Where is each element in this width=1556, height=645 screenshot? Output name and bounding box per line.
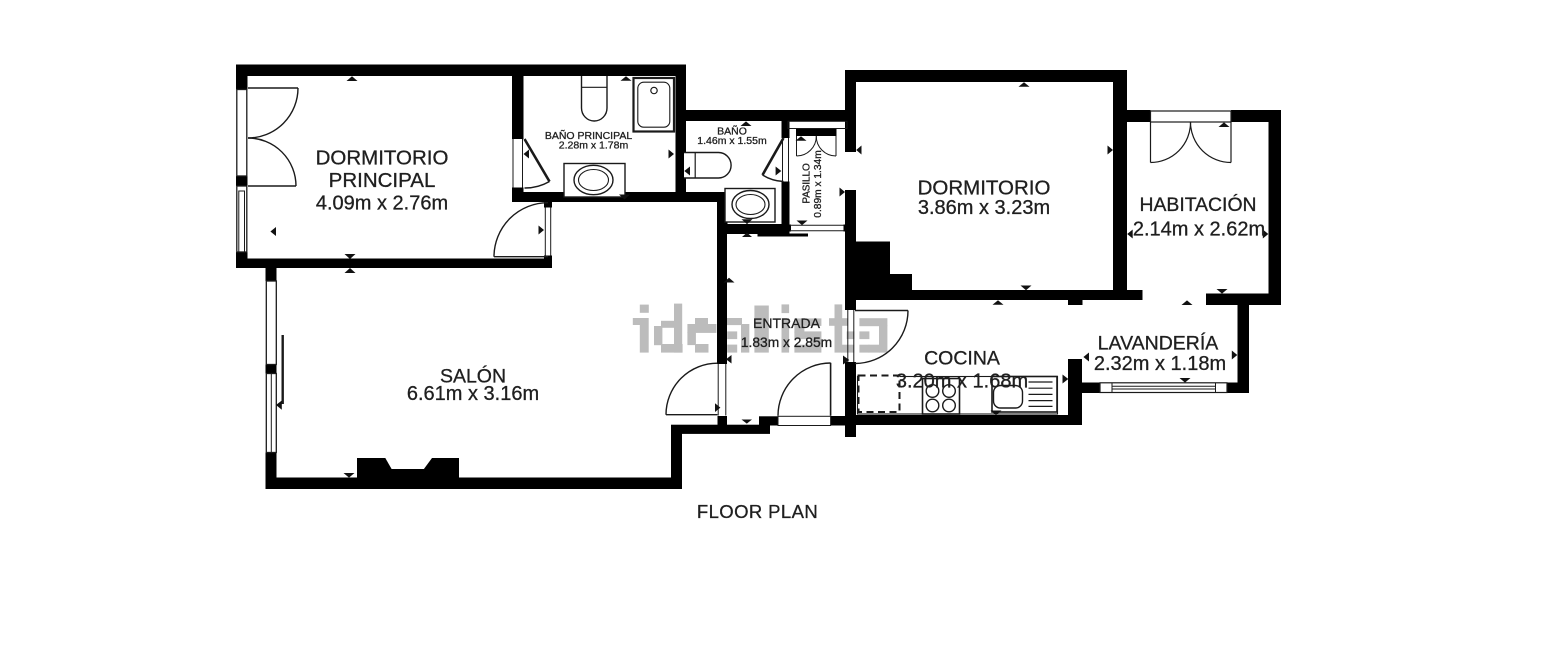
svg-text:DORMITORIO: DORMITORIO xyxy=(316,147,449,170)
svg-text:0.89m x 1.34m: 0.89m x 1.34m xyxy=(813,150,824,217)
svg-text:LAVANDERÍA: LAVANDERÍA xyxy=(1098,332,1219,355)
svg-text:6.61m x 3.16m: 6.61m x 3.16m xyxy=(407,383,539,405)
svg-text:2.28m x 1.78m: 2.28m x 1.78m xyxy=(559,140,629,152)
svg-text:COCINA: COCINA xyxy=(924,348,1000,370)
svg-text:1.46m x 1.55m: 1.46m x 1.55m xyxy=(697,135,767,147)
svg-text:ENTRADA: ENTRADA xyxy=(753,315,821,331)
svg-text:PASILLO: PASILLO xyxy=(802,163,813,204)
svg-text:2.14m x 2.62m: 2.14m x 2.62m xyxy=(1133,219,1265,241)
svg-text:1.83m x 2.85m: 1.83m x 2.85m xyxy=(741,335,832,350)
svg-text:3.20m x 1.68m: 3.20m x 1.68m xyxy=(896,371,1028,393)
svg-text:PRINCIPAL: PRINCIPAL xyxy=(329,169,436,192)
svg-text:2.32m x 1.18m: 2.32m x 1.18m xyxy=(1094,353,1226,375)
svg-text:3.86m x 3.23m: 3.86m x 3.23m xyxy=(918,197,1050,219)
svg-text:4.09m x 2.76m: 4.09m x 2.76m xyxy=(316,193,448,215)
svg-text:FLOOR PLAN: FLOOR PLAN xyxy=(697,501,818,522)
svg-text:HABITACIÓN: HABITACIÓN xyxy=(1139,193,1256,216)
